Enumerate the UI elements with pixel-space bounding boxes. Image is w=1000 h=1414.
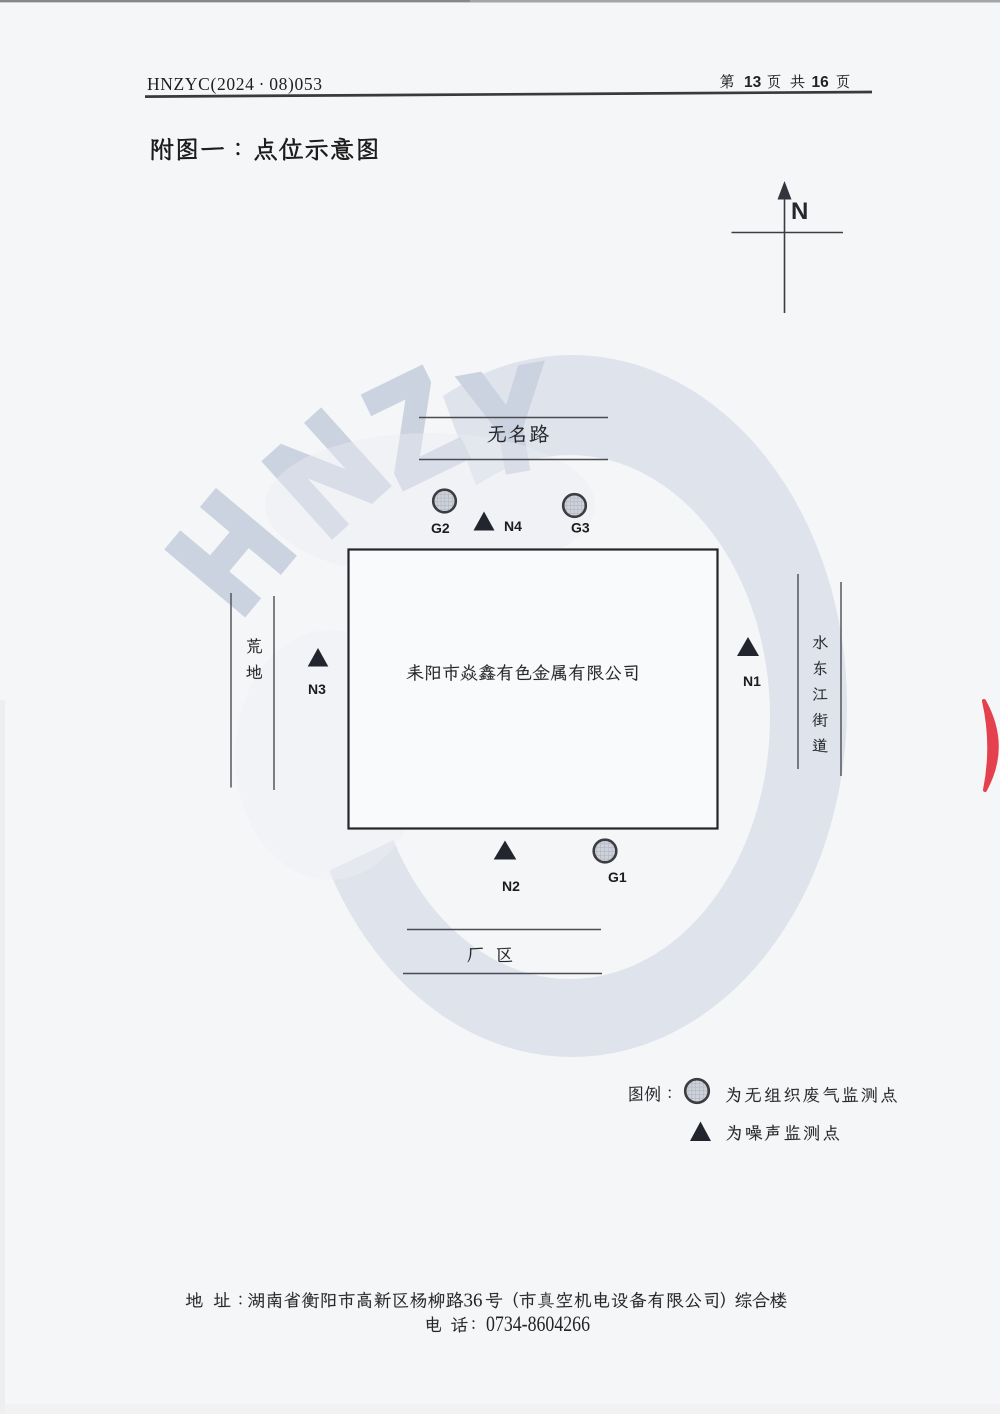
svg-text:G3: G3 xyxy=(571,520,590,536)
svg-text:36: 36 xyxy=(464,1291,483,1312)
svg-text:N1: N1 xyxy=(743,673,761,689)
svg-text:G2: G2 xyxy=(431,520,450,536)
svg-text:N2: N2 xyxy=(502,878,520,894)
svg-text:N3: N3 xyxy=(308,681,326,697)
svg-text:HNZYC(2024 · 08)053: HNZYC(2024 · 08)053 xyxy=(147,74,322,94)
svg-text:16: 16 xyxy=(812,74,830,91)
svg-text:N: N xyxy=(791,198,808,225)
svg-text:N4: N4 xyxy=(504,518,522,534)
svg-text:13: 13 xyxy=(744,74,762,91)
svg-text:0734-8604266: 0734-8604266 xyxy=(486,1311,590,1336)
svg-text:G1: G1 xyxy=(608,869,627,885)
